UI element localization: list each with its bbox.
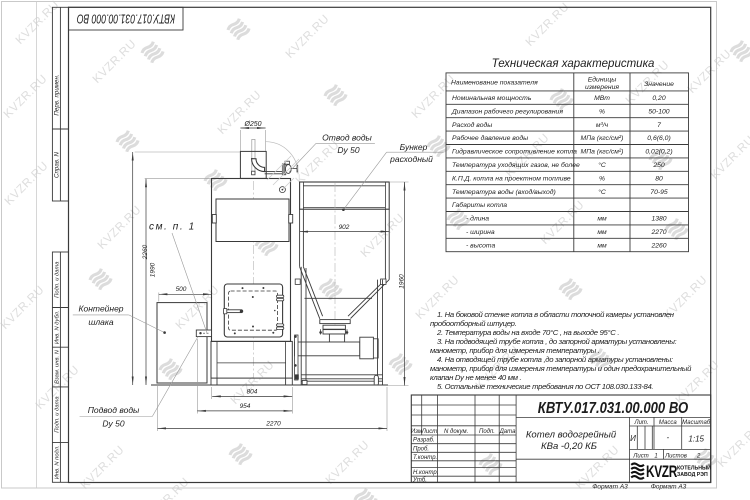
svg-text:1. На боковой стенке котла в: 1. На боковой стенке котла в области топ… bbox=[437, 310, 675, 319]
svg-text:МВт: МВт bbox=[594, 95, 610, 102]
svg-text:804: 804 bbox=[247, 389, 258, 396]
svg-text:Проб.: Проб. bbox=[413, 446, 429, 452]
svg-text:Расход воды: Расход воды bbox=[452, 121, 492, 129]
svg-text:954: 954 bbox=[240, 403, 251, 410]
svg-text:3. На подводящей трубе котла: 3. На подводящей трубе котла , до запорн… bbox=[437, 337, 677, 346]
svg-text:4. На отводящей трубе котла ,: 4. На отводящей трубе котла ,до запорной… bbox=[437, 355, 673, 364]
svg-text:Ø250: Ø250 bbox=[243, 121, 261, 128]
svg-text:902: 902 bbox=[339, 224, 350, 231]
svg-text:1:15: 1:15 bbox=[688, 435, 704, 444]
svg-text:2270: 2270 bbox=[650, 229, 666, 236]
svg-text:°С: °С bbox=[598, 188, 606, 196]
svg-text:70-95: 70-95 bbox=[650, 189, 668, 196]
svg-text:7: 7 bbox=[657, 122, 661, 129]
svg-text:Взам. инв. N: Взам. инв. N bbox=[55, 349, 61, 384]
svg-text:Перв. примен.: Перв. примен. bbox=[54, 74, 61, 115]
svg-text:Гидравлическое сопротивление к: Гидравлическое сопротивление котла bbox=[452, 148, 577, 156]
svg-text:клапан Dу не менее 40 мм .: клапан Dу не менее 40 мм . bbox=[430, 373, 522, 382]
svg-text:2270: 2270 bbox=[265, 421, 281, 428]
svg-text:Инв. N подл.: Инв. N подл. bbox=[55, 445, 61, 479]
svg-text:Техническая характеристика: Техническая характеристика bbox=[492, 58, 655, 70]
svg-text:%: % bbox=[599, 108, 605, 115]
svg-text:1960: 1960 bbox=[399, 274, 406, 289]
svg-text:N докум.: N докум. bbox=[444, 429, 468, 435]
svg-text:Контейнер: Контейнер bbox=[78, 304, 123, 314]
svg-text:Номинальная мощность: Номинальная мощность bbox=[452, 95, 532, 102]
svg-text:КВТУ.017.031.00.000 ВО: КВТУ.017.031.00.000 ВО bbox=[77, 11, 176, 25]
svg-text:Температура уходящих газов, не: Температура уходящих газов, не более bbox=[452, 161, 580, 169]
svg-text:0,6(6,0): 0,6(6,0) bbox=[647, 135, 670, 142]
svg-text:Dy 50: Dy 50 bbox=[337, 145, 359, 155]
svg-text:Рабочее давление воды: Рабочее давление воды bbox=[452, 134, 528, 142]
svg-text:2260: 2260 bbox=[142, 244, 149, 260]
svg-text:мм: мм bbox=[597, 242, 607, 249]
svg-text:пробоотборный штуцер.: пробоотборный штуцер. bbox=[430, 319, 517, 328]
svg-text:манометр, прибор для измерени: манометр, прибор для измерения температу… bbox=[430, 346, 600, 355]
svg-text:Подвод воды: Подвод воды bbox=[88, 405, 140, 415]
svg-text:ЗАВОД РЭП: ЗАВОД РЭП bbox=[677, 472, 708, 478]
svg-text:Н.контр.: Н.контр. bbox=[413, 470, 438, 476]
svg-text:2: 2 bbox=[696, 453, 701, 459]
svg-text:Инв. N дубл.: Инв. N дубл. bbox=[55, 311, 61, 345]
svg-text:KVZR: KVZR bbox=[646, 463, 678, 482]
svg-text:см. п. 1: см. п. 1 bbox=[149, 222, 196, 233]
svg-text:- высота: - высота bbox=[466, 242, 495, 249]
svg-text:%: % bbox=[599, 175, 605, 182]
svg-text:Листов: Листов bbox=[664, 453, 687, 459]
svg-text:250: 250 bbox=[652, 162, 665, 169]
svg-text:Лит.: Лит. bbox=[633, 420, 648, 426]
svg-text:°С: °С bbox=[598, 161, 606, 169]
svg-text:К.П.Д. котла на проектном топл: К.П.Д. котла на проектном топливе bbox=[452, 175, 571, 182]
svg-text:Лист: Лист bbox=[632, 453, 648, 459]
svg-text:0,02(0,2): 0,02(0,2) bbox=[645, 149, 672, 156]
svg-text:Формат А3: Формат А3 bbox=[651, 484, 687, 491]
svg-text:2260: 2260 bbox=[650, 242, 666, 249]
svg-text:Габариты котла: Габариты котла bbox=[452, 201, 507, 209]
svg-text:Котел водогрейный: Котел водогрейный bbox=[526, 430, 617, 441]
svg-text:расходный: расходный bbox=[389, 154, 433, 164]
svg-text:Масса: Масса bbox=[659, 420, 677, 426]
svg-text:- длина: - длина bbox=[466, 215, 489, 223]
svg-text:5. Остальные технические треб: 5. Остальные технические требования по О… bbox=[437, 382, 653, 391]
svg-text:0,20: 0,20 bbox=[652, 95, 665, 102]
svg-text:Подп.: Подп. bbox=[479, 429, 495, 435]
svg-text:Изм: Изм bbox=[411, 429, 422, 435]
svg-text:1990: 1990 bbox=[149, 262, 156, 277]
svg-text:- ширина: - ширина bbox=[466, 229, 495, 236]
svg-text:КВа -0,20 КБ: КВа -0,20 КБ bbox=[541, 441, 597, 452]
svg-text:Значение: Значение bbox=[644, 81, 674, 88]
svg-text:2. Температура воды на входе: 2. Температура воды на входе 70°С , на в… bbox=[436, 328, 619, 337]
svg-text:Бункер: Бункер bbox=[400, 142, 428, 152]
svg-text:Формат А3: Формат А3 bbox=[592, 484, 628, 491]
svg-text:Справ. N: Справ. N bbox=[54, 152, 61, 178]
svg-text:КВТУ.017.031.00.000 ВО: КВТУ.017.031.00.000 ВО bbox=[538, 400, 689, 417]
svg-text:мм: мм bbox=[597, 216, 607, 223]
svg-text:МПа (кгс/см²): МПа (кгс/см²) bbox=[581, 135, 624, 142]
svg-text:Т.контр.: Т.контр. bbox=[413, 455, 437, 461]
svg-text:80: 80 bbox=[655, 175, 663, 182]
svg-text:Единицы: Единицы bbox=[588, 76, 616, 84]
svg-text:Отвод воды: Отвод воды bbox=[322, 133, 372, 143]
svg-text:Подп. и дата: Подп. и дата bbox=[55, 261, 61, 298]
svg-text:Диапазон рабочего регулировани: Диапазон рабочего регулирования bbox=[451, 107, 563, 115]
svg-text:измерения: измерения bbox=[585, 84, 619, 91]
svg-text:шлака: шлака bbox=[88, 317, 114, 327]
svg-text:МПа (кгс/см²): МПа (кгс/см²) bbox=[581, 149, 624, 156]
svg-text:И: И bbox=[630, 434, 636, 443]
svg-text:КОТЕЛЬНЫЙ: КОТЕЛЬНЫЙ bbox=[677, 463, 711, 471]
svg-text:манометр, прибор для измерени: манометр, прибор для измерения температу… bbox=[430, 364, 692, 373]
svg-text:Разраб.: Разраб. bbox=[413, 438, 435, 444]
svg-text:-: - bbox=[666, 433, 669, 442]
svg-text:50-100: 50-100 bbox=[648, 108, 669, 115]
svg-text:500: 500 bbox=[176, 286, 187, 293]
svg-text:мм: мм bbox=[597, 229, 607, 236]
svg-text:1: 1 bbox=[654, 453, 657, 459]
svg-text:1380: 1380 bbox=[651, 216, 666, 223]
svg-text:Дата: Дата bbox=[499, 429, 516, 435]
svg-text:Утб.: Утб. bbox=[412, 477, 427, 483]
svg-text:Масштаб: Масштаб bbox=[682, 420, 711, 426]
svg-text:Лист: Лист bbox=[421, 429, 437, 435]
svg-text:Dy 50: Dy 50 bbox=[102, 419, 124, 429]
svg-text:Подп. и дата: Подп. и дата bbox=[55, 396, 61, 433]
svg-text:Наименование показателя: Наименование показателя bbox=[451, 80, 538, 87]
svg-text:Температура воды (вход/выход): Температура воды (вход/выход) bbox=[452, 188, 556, 196]
svg-text:м³/ч: м³/ч bbox=[596, 122, 609, 129]
